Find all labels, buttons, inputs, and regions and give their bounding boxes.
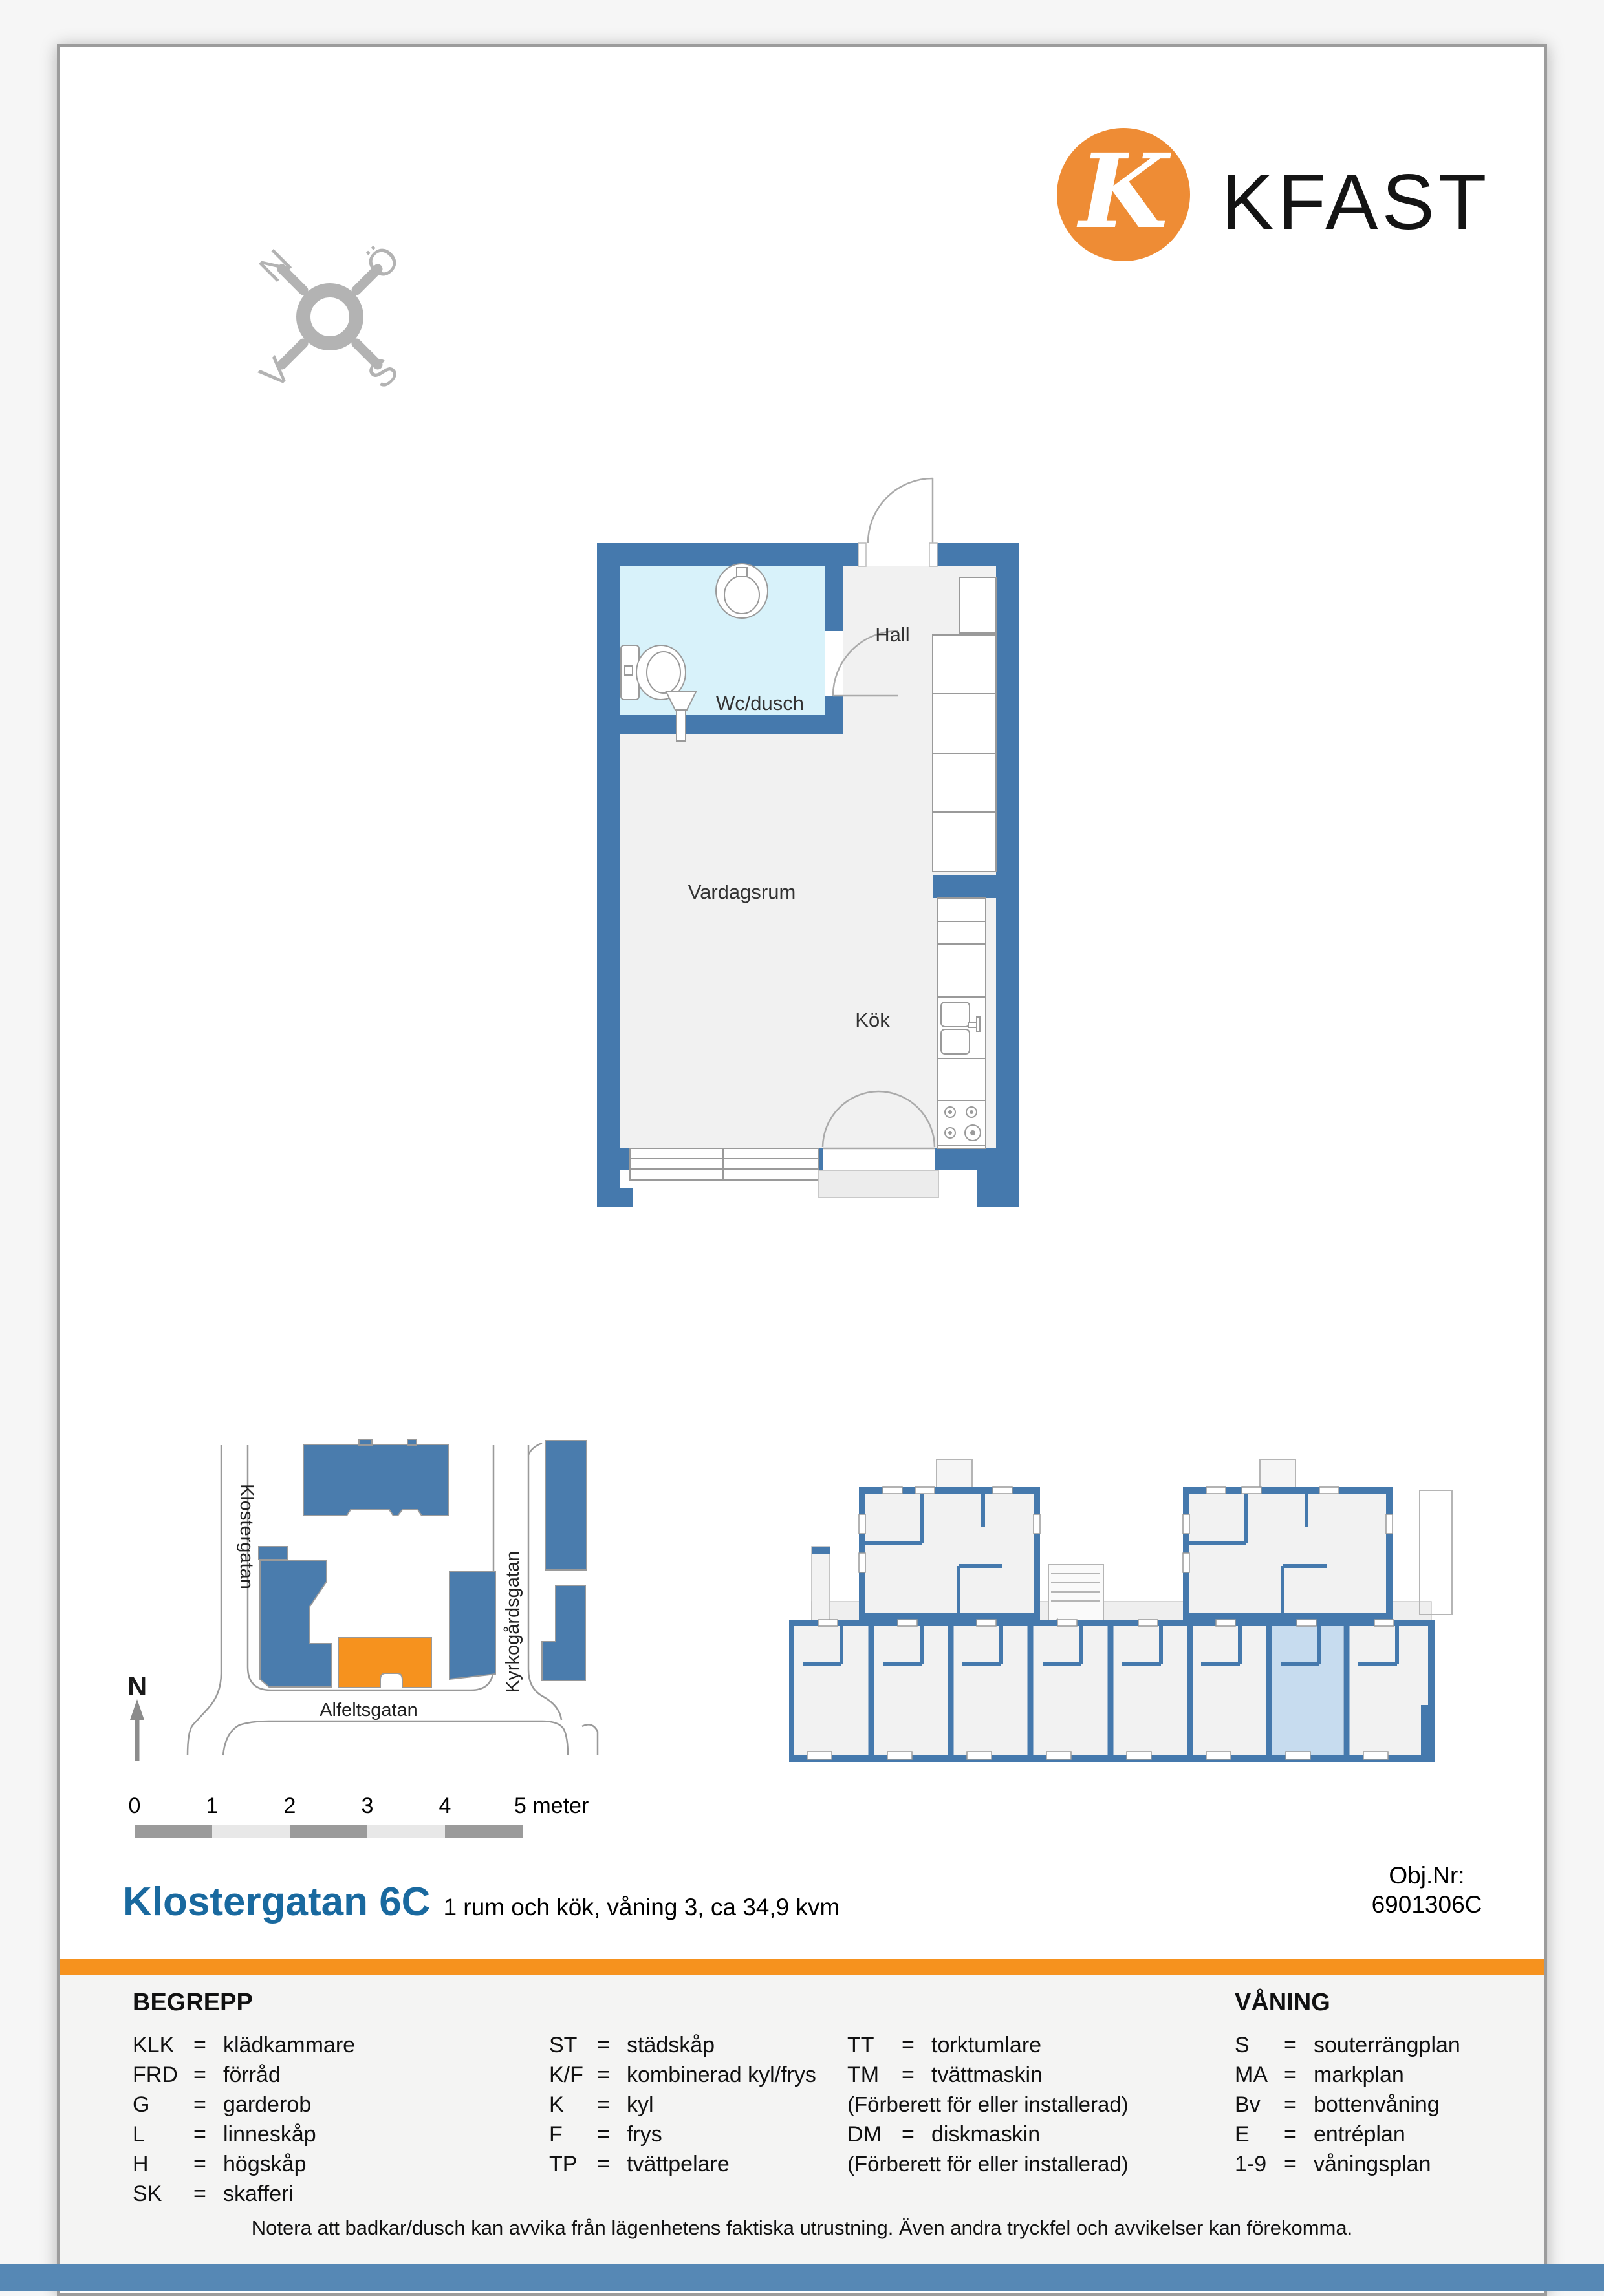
- scale-tick: 0: [129, 1794, 141, 1819]
- building-mid-right: [450, 1572, 495, 1679]
- object-number: Obj.Nr: 6901306C: [1310, 1861, 1543, 1919]
- legend-row: S=souterrängplan: [1235, 2030, 1460, 2060]
- legend-column-2: ST=städskåp K/F=kombinerad kyl/frys K=ky…: [549, 2030, 816, 2179]
- document-canvas: N Ö S V K KFAST: [0, 0, 1604, 2291]
- footer-bar: [0, 2264, 1604, 2291]
- legend-row: E=entréplan: [1235, 2119, 1460, 2149]
- legend-row: L=linneskåp: [133, 2119, 355, 2149]
- legend-note: (Förberett för eller installerad): [847, 2090, 1129, 2119]
- building-overview: [789, 1456, 1455, 1779]
- legend-begrepp-title: BEGREPP: [133, 1989, 253, 2017]
- building-subject: [338, 1638, 431, 1688]
- legend-row: Bv=bottenvåning: [1235, 2090, 1460, 2119]
- building-lower-right: [542, 1585, 585, 1680]
- street-left-label: Klostergatan: [236, 1484, 257, 1589]
- disclaimer-note: Notera att badkar/dusch kan avvika från …: [60, 2216, 1544, 2240]
- legend-row: H=högskåp: [133, 2149, 355, 2179]
- scale-end-label: 5 meter: [514, 1794, 589, 1819]
- legend-row: DM=diskmaskin: [847, 2119, 1129, 2149]
- legend-row: TM=tvättmaskin: [847, 2060, 1129, 2090]
- kitchen-label: Kök: [855, 1009, 890, 1031]
- legend-column-3: TT=torktumlare TM=tvättmaskin (Förberett…: [847, 2030, 1129, 2179]
- legend-row: F=frys: [549, 2119, 816, 2149]
- legend-row: TT=torktumlare: [847, 2030, 1129, 2060]
- scale-tick: 2: [284, 1794, 296, 1819]
- building-upper-right: [545, 1441, 587, 1570]
- hall-label: Hall: [875, 623, 909, 646]
- north-arrow: N: [127, 1671, 147, 1761]
- legend-row: K/F=kombinerad kyl/frys: [549, 2060, 816, 2090]
- legend-column-1: KLK=klädkammare FRD=förråd G=garderob L=…: [133, 2030, 355, 2209]
- scale-tick: 4: [439, 1794, 451, 1819]
- compass-rose: N Ö S V: [213, 168, 453, 440]
- kitchen-counter: [937, 898, 986, 1148]
- legend-vaning-title: VÅNING: [1235, 1989, 1330, 2017]
- site-map: Klostergatan Kyrkogårdsgatan Alfeltsgata…: [116, 1429, 640, 1791]
- legend-row: FRD=förråd: [133, 2060, 355, 2090]
- floor-plan: Hall Wc/dusch Vardagsrum Kök: [569, 472, 1035, 1225]
- site-buildings: [259, 1439, 587, 1688]
- legend-row: K=kyl: [549, 2090, 816, 2119]
- object-number-label: Obj.Nr:: [1310, 1861, 1543, 1890]
- object-number-value: 6901306C: [1310, 1890, 1543, 1919]
- legend-column-4: S=souterrängplan MA=markplan Bv=bottenvå…: [1235, 2030, 1460, 2179]
- kfast-monogram-icon: K: [1057, 128, 1190, 261]
- legend-row: MA=markplan: [1235, 2060, 1460, 2090]
- windows: [630, 1148, 818, 1180]
- legend-row: ST=städskåp: [549, 2030, 816, 2060]
- street-right-label: Kyrkogårdsgatan: [503, 1551, 523, 1693]
- building-top: [303, 1444, 448, 1516]
- living-label: Vardagsrum: [688, 881, 796, 903]
- orange-divider: [60, 1959, 1544, 1975]
- legend-row: KLK=klädkammare: [133, 2030, 355, 2060]
- legend-note: (Förberett för eller installerad): [847, 2149, 1129, 2179]
- entrance-door: [868, 478, 933, 543]
- street-bottom-label: Alfeltsgatan: [320, 1700, 418, 1721]
- compass-ring: [303, 290, 356, 343]
- highlighted-apartment: [1272, 1626, 1343, 1755]
- building-tab: [259, 1547, 288, 1560]
- kfast-logo: K: [1057, 128, 1190, 261]
- scale-tick: 3: [362, 1794, 374, 1819]
- kitchen-sink-basin: [941, 1002, 970, 1027]
- upper-units: [859, 1487, 1393, 1616]
- legend-row: G=garderob: [133, 2090, 355, 2119]
- svg-text:N: N: [127, 1671, 147, 1701]
- balcony-slab: [819, 1170, 938, 1197]
- bathroom-sink: [716, 564, 768, 618]
- bathroom-label: Wc/dusch: [716, 692, 804, 714]
- legend-row: TP=tvättpelare: [549, 2149, 816, 2179]
- legend-row: SK=skafferi: [133, 2179, 355, 2209]
- page-subtitle: 1 rum och kök, våning 3, ca 34,9 kvm: [443, 1894, 840, 1921]
- right-wing-outline: [1420, 1490, 1452, 1615]
- scale-tick: 1: [206, 1794, 219, 1819]
- building-left-l: [260, 1560, 332, 1687]
- legend-row: 1-9=våningsplan: [1235, 2149, 1460, 2179]
- brand-name: KFAST: [1221, 156, 1490, 247]
- page-title: Klostergatan 6C: [123, 1879, 430, 1925]
